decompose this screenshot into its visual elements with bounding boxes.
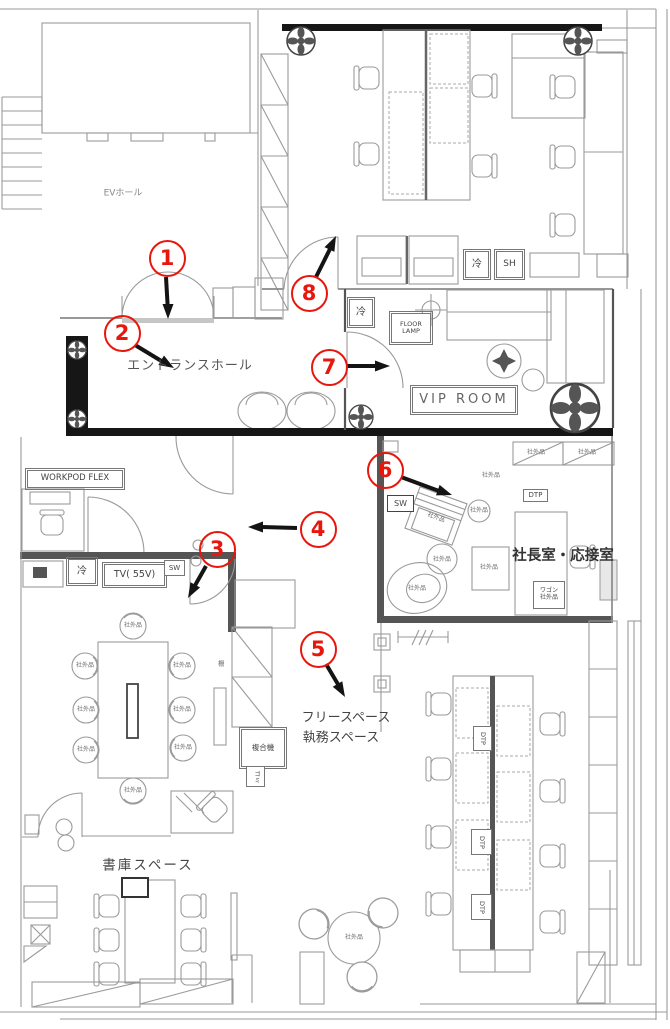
floor-lamp-label: FLOOR LAMP <box>391 313 431 343</box>
workpod-flex-label: WORKPOD FLEX <box>27 470 123 488</box>
gaihin-chip-cabinet-1: 社外品 <box>527 450 545 456</box>
free-space-structure <box>232 621 641 1004</box>
dtp-label-desk-1: DTP <box>473 726 492 751</box>
sh-label: SH <box>496 251 523 278</box>
wagon-label: ワゴン 社外品 <box>533 581 565 609</box>
president-room-structure <box>374 289 641 732</box>
sw-label-tv: SW <box>164 560 185 576</box>
gaihin-chip-plain: 社外品 <box>482 473 500 479</box>
gaihin-chip-meeting-7: 社外品 <box>174 745 192 751</box>
sw-label-president: SW <box>387 495 414 512</box>
gaihin-chip-cabinet-2: 社外品 <box>578 450 596 456</box>
fridge-label-vip: 冷 <box>349 299 373 326</box>
gaihin-chip-circle: 社外品 <box>470 508 488 514</box>
dtp-label-president: DTP <box>523 489 548 502</box>
gaihin-chip-round-table: 社外品 <box>433 557 451 563</box>
annotation-2: 2 <box>104 315 141 352</box>
trash-label: ゴミ <box>246 766 265 787</box>
gaihin-chip-meeting-1: 社外品 <box>124 623 142 629</box>
gaihin-chip-meeting-5: 社外品 <box>173 663 191 669</box>
library-label: 書庫スペース <box>102 859 193 873</box>
gaihin-chip-cafe-table: 社外品 <box>345 935 363 941</box>
free-space-label-1: フリースペース <box>302 712 391 725</box>
vip-room-label: VIP ROOM <box>412 387 516 413</box>
floor-plan-page: EVホール エントランスホール VIP ROOM 社長室・応接室 フリースペース… <box>0 0 670 1029</box>
free-space-label-2: 執務スペース <box>303 732 379 745</box>
entrance-hall-label: エントランスホール <box>127 360 253 373</box>
floor-lamp-line2: LAMP <box>402 328 420 335</box>
gaihin-chip-meeting-2: 社外品 <box>76 663 94 669</box>
annotation-4: 4 <box>300 511 337 548</box>
gaihin-chip-meeting-8: 社外品 <box>124 788 142 794</box>
annotation-7: 7 <box>311 349 348 386</box>
gaihin-chip-meeting-4: 社外品 <box>77 747 95 753</box>
ev-hall-structure <box>2 10 258 286</box>
dtp-label-desk-2: DTP <box>471 829 492 855</box>
ev-hall-label: EVホール <box>104 190 143 199</box>
shelf-label: 棚 <box>217 660 224 667</box>
wagon-line2: 社外品 <box>540 595 558 602</box>
annotation-3: 3 <box>199 531 236 568</box>
annotation-1: 1 <box>149 240 186 277</box>
mfp-label: 複合機 <box>241 729 285 767</box>
floor-plan-drawing <box>0 0 670 1029</box>
fridge-label-top: 冷 <box>465 251 489 278</box>
gaihin-chip-meeting-6: 社外品 <box>173 707 191 713</box>
fridge-label-left: 冷 <box>68 559 96 584</box>
annotation-8: 8 <box>291 275 328 312</box>
gaihin-chip-square-table: 社外品 <box>480 565 498 571</box>
annotation-5: 5 <box>300 631 337 668</box>
tv-label: TV( 55V) <box>104 564 165 586</box>
gaihin-chip-meeting-3: 社外品 <box>77 707 95 713</box>
annotation-6: 6 <box>367 452 404 489</box>
gaihin-chip-egg-chair: 社外品 <box>408 586 426 592</box>
top-office-room <box>261 10 628 310</box>
president-room-label: 社長室・応接室 <box>512 549 614 564</box>
dtp-label-desk-3: DTP <box>471 894 492 920</box>
